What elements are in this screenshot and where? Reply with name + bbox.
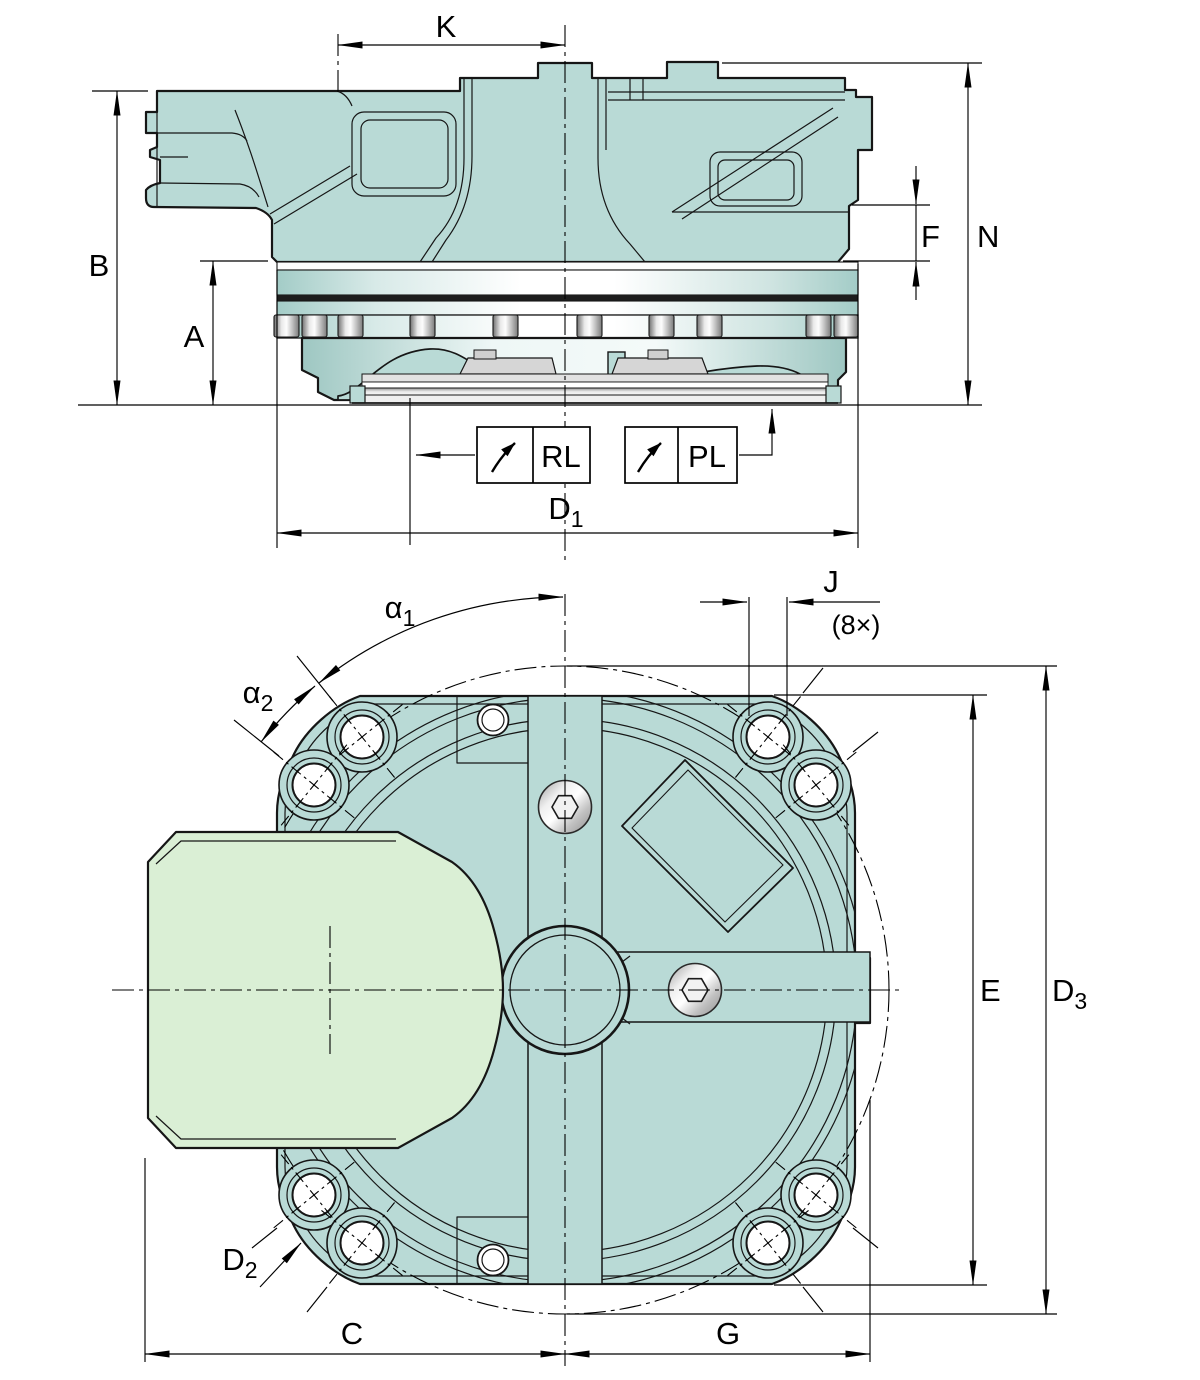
dim-label-alpha1: α1	[385, 590, 416, 631]
locating-hole-bottom	[478, 1245, 509, 1276]
dim-label-N: N	[977, 219, 999, 254]
dim-label-K: K	[436, 9, 457, 44]
rotary-clamp-drawing: K B A N F D1	[0, 0, 1200, 1380]
dim-label-E: E	[980, 973, 1001, 1008]
dim-label-D1-sub: 1	[571, 506, 584, 532]
dim-label-D3: D3	[1052, 973, 1087, 1014]
dim-label-G: G	[716, 1316, 740, 1351]
port-label-RL: RL	[541, 439, 581, 474]
port-symbol-PL: PL	[625, 409, 772, 483]
dim-label-D1: D1	[548, 491, 583, 532]
port-label-PL: PL	[688, 439, 726, 474]
bottom-view: α1 α2 J (8×) E	[112, 564, 1087, 1366]
dim-label-A: A	[184, 319, 205, 354]
dim-label-F: F	[921, 219, 940, 254]
dim-label-C: C	[341, 1316, 363, 1351]
dim-label-alpha2: α2	[243, 675, 274, 716]
top-view: K B A N F D1	[78, 9, 999, 560]
dim-label-B: B	[89, 248, 110, 283]
dim-label-J-count: (8×)	[832, 610, 881, 640]
dim-label-J: J	[823, 564, 839, 599]
guide-shoe-left	[460, 358, 556, 374]
rotor-flange-bands	[277, 262, 858, 338]
guide-shoe-right	[612, 358, 708, 374]
locating-hole-top	[478, 705, 509, 736]
web-band-horizontal	[600, 952, 870, 1022]
rail-stack	[350, 374, 841, 403]
dim-label-D1-base: D	[548, 491, 570, 526]
technical-drawing-canvas: K B A N F D1	[0, 0, 1200, 1380]
housing-lower	[302, 338, 846, 403]
